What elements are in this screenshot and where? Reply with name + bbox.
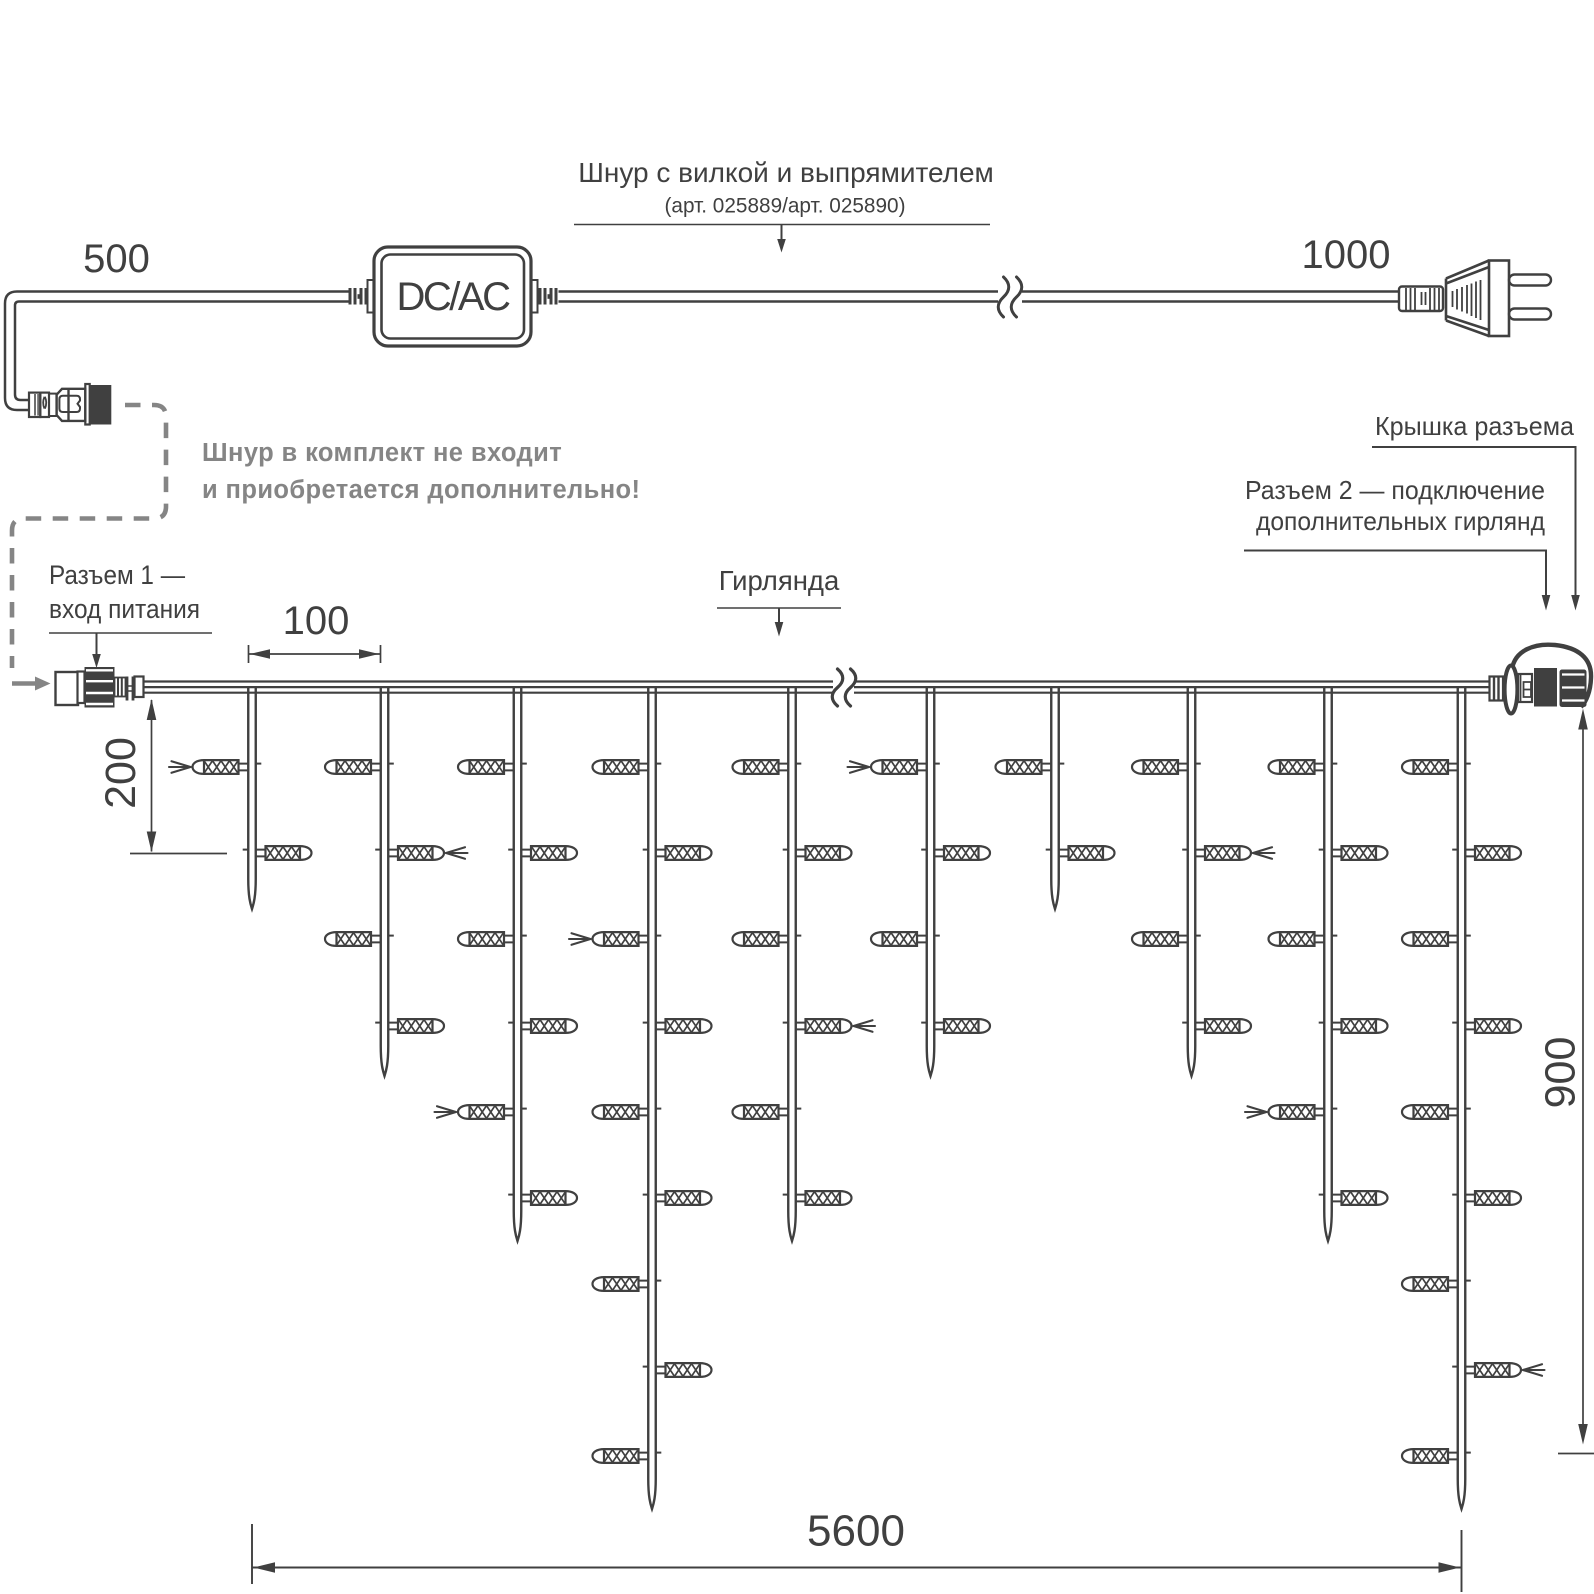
svg-text:(арт. 025889/арт. 025890): (арт. 025889/арт. 025890) (665, 195, 906, 218)
svg-text:DC/AC: DC/AC (397, 275, 511, 319)
svg-text:Гирлянда: Гирлянда (719, 565, 840, 596)
svg-text:Шнур с вилкой и выпрямителем: Шнур с вилкой и выпрямителем (578, 157, 994, 188)
svg-text:100: 100 (283, 599, 350, 643)
svg-text:5600: 5600 (807, 1507, 905, 1556)
svg-text:Разъем 1 —: Разъем 1 — (49, 560, 185, 590)
svg-text:и приобретается дополнительно!: и приобретается дополнительно! (202, 476, 640, 504)
svg-text:200: 200 (97, 737, 145, 809)
svg-text:вход питания: вход питания (49, 594, 200, 624)
svg-text:500: 500 (83, 237, 150, 281)
svg-text:1000: 1000 (1302, 233, 1391, 277)
svg-text:дополнительных гирлянд: дополнительных гирлянд (1256, 506, 1545, 536)
svg-text:900: 900 (1537, 1037, 1585, 1109)
svg-text:Шнур в комплект не входит: Шнур в комплект не входит (202, 439, 562, 467)
svg-text:Крышка разъема: Крышка разъема (1375, 411, 1575, 441)
svg-text:Разъем 2 — подключение: Разъем 2 — подключение (1245, 475, 1545, 505)
